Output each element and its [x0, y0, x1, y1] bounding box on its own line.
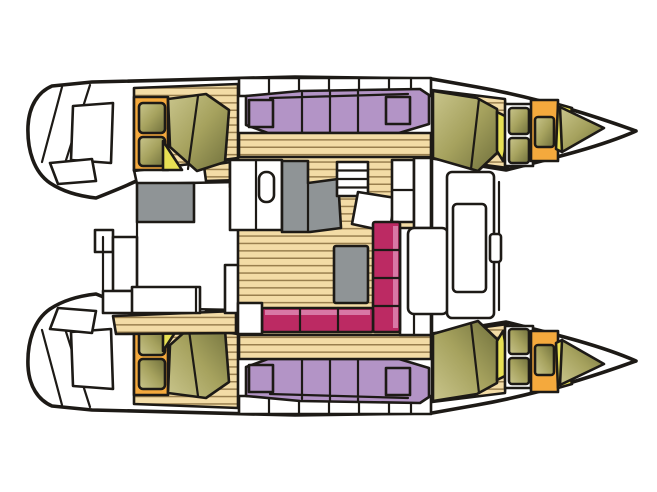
salon-step: [238, 303, 262, 334]
foredeck: [447, 172, 501, 318]
forward-cockpit-bench: [453, 204, 486, 292]
deck-plan-svg: [0, 0, 657, 492]
sofa-highlight: [265, 310, 370, 315]
cockpit-aft-step: [113, 311, 236, 334]
catamaran-deck-plan: [0, 0, 657, 492]
cockpit-table: [132, 287, 200, 313]
salon-door: [408, 228, 448, 314]
cockpit-bench: [137, 183, 194, 222]
galley-sink: [259, 172, 274, 202]
cockpit-module: [113, 237, 137, 291]
forward-wall-column: [414, 158, 431, 230]
bowsprit-fitting: [490, 234, 501, 262]
salon-table: [334, 246, 368, 303]
salon: [230, 157, 448, 335]
